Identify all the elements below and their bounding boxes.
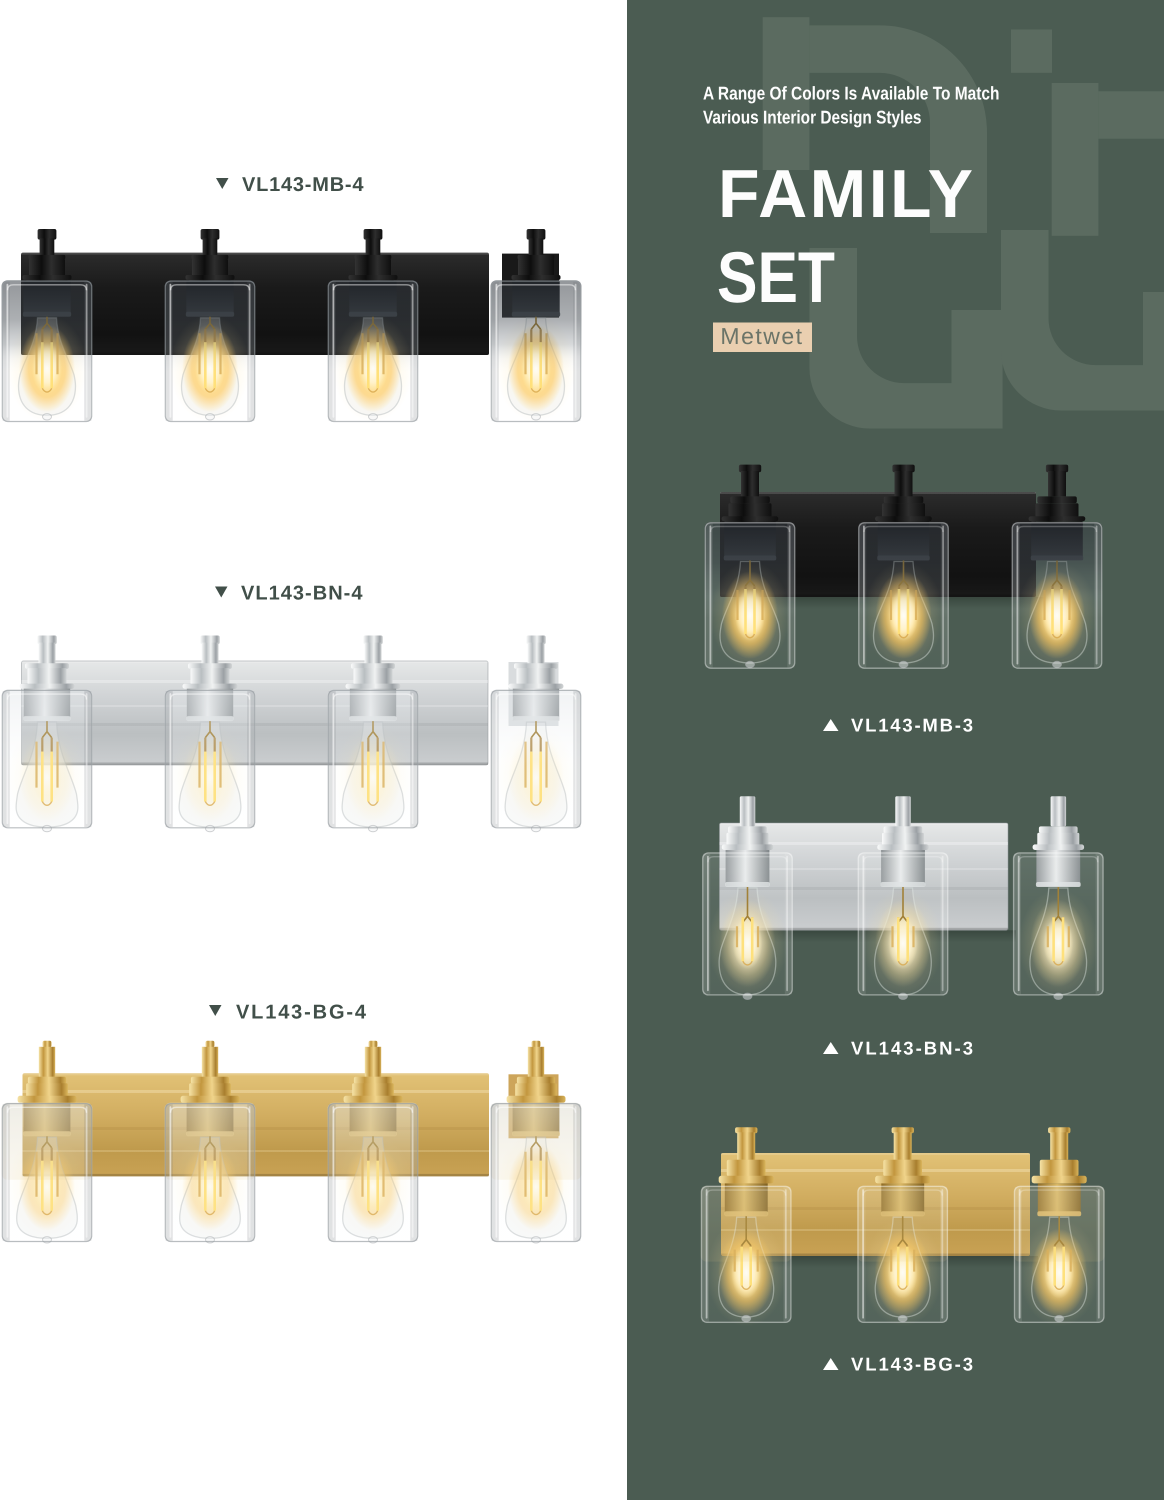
svg-text:SET: SET <box>717 238 835 318</box>
svg-text:A Range Of Colors Is Available: A Range Of Colors Is Available To Match <box>703 83 1000 104</box>
svg-text:VL143-BG-4: VL143-BG-4 <box>236 1002 367 1024</box>
svg-text:VL143-BN-3: VL143-BN-3 <box>851 1038 973 1059</box>
svg-text:VL143-BG-3: VL143-BG-3 <box>851 1354 973 1375</box>
svg-text:Various Interior Design Styles: Various Interior Design Styles <box>703 107 922 128</box>
svg-text:Metwet: Metwet <box>720 323 803 349</box>
svg-text:VL143-BN-4: VL143-BN-4 <box>241 583 363 605</box>
svg-text:VL143-MB-4: VL143-MB-4 <box>242 174 364 196</box>
svg-text:VL143-MB-3: VL143-MB-3 <box>851 715 973 736</box>
